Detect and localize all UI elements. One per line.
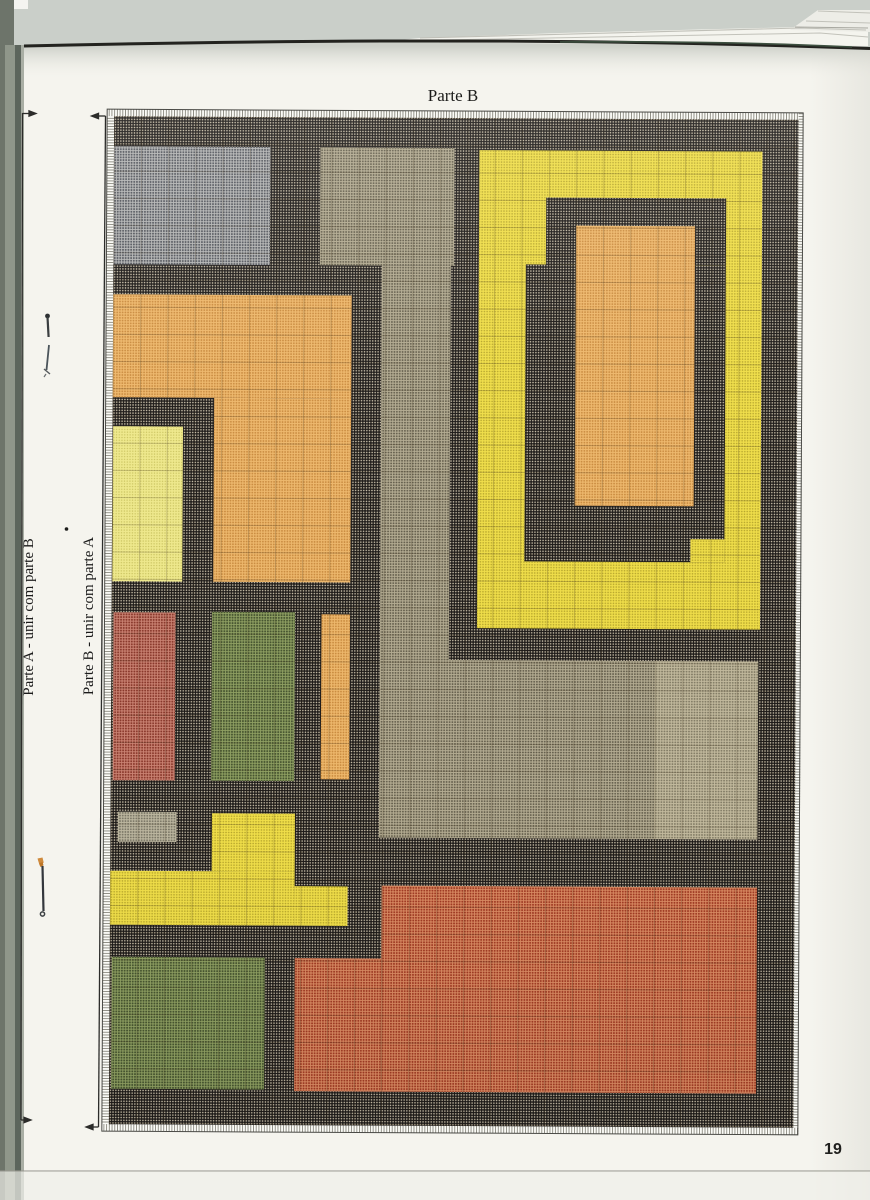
svg-text:Parte A - unir com parte B: Parte A - unir com parte B bbox=[21, 538, 37, 695]
svg-text:Parte B - unir com parte A: Parte B - unir com parte A bbox=[81, 537, 97, 695]
svg-text:Parte B: Parte B bbox=[428, 86, 479, 105]
svg-text:19: 19 bbox=[824, 1141, 842, 1158]
